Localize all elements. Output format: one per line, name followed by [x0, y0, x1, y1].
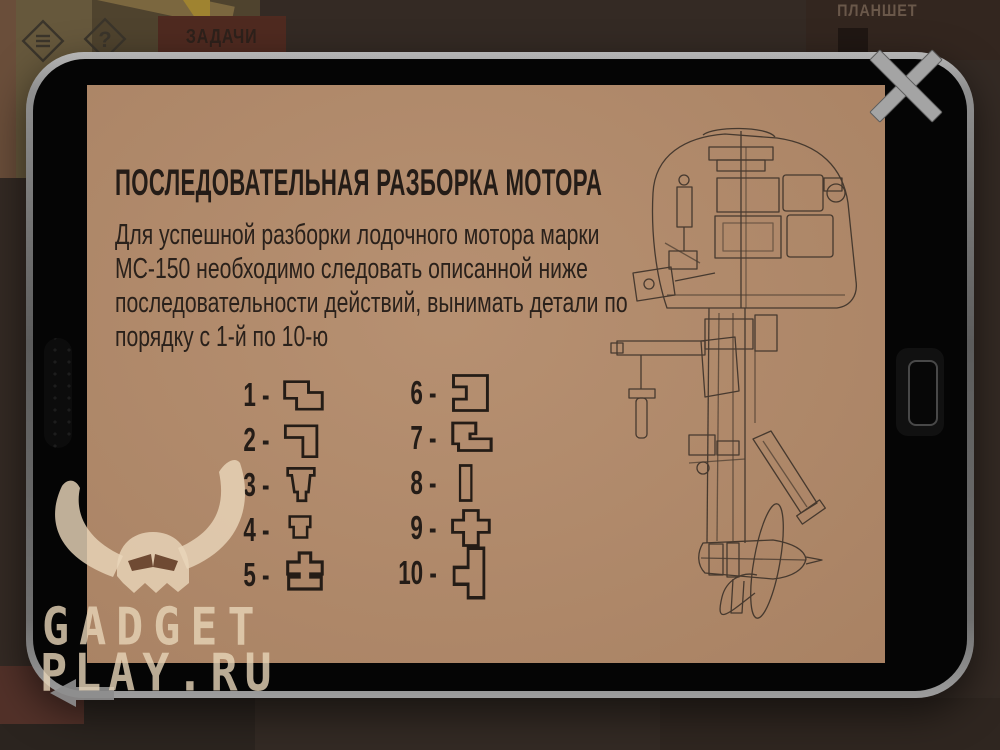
sequence-piece-icon — [281, 420, 323, 460]
sequence-item-2: 2 - — [212, 418, 327, 462]
sequence-piece-icon — [281, 464, 321, 506]
sequence-item-4: 4 - — [212, 508, 327, 552]
speaker-grille — [44, 338, 72, 448]
sequence-number: 5 - — [212, 556, 270, 594]
sequence-item-7: 7 - — [379, 416, 494, 460]
close-button[interactable] — [866, 46, 946, 126]
sequence-list-left: 1 - 2 - 3 - 4 - 5 - — [212, 373, 327, 597]
sequence-piece-icon — [281, 375, 325, 415]
sequence-number: 4 - — [212, 511, 270, 549]
back-arrow-icon[interactable] — [48, 676, 120, 712]
sequence-number: 3 - — [212, 466, 270, 504]
sequence-piece-icon — [448, 546, 490, 600]
sequence-item-6: 6 - — [379, 371, 494, 415]
sequence-item-9: 9 - — [379, 506, 494, 550]
room-floor-panel — [660, 698, 1000, 750]
sequence-item-1: 1 - — [212, 373, 327, 417]
sequence-number: 1 - — [212, 376, 270, 414]
sequence-number: 9 - — [379, 509, 437, 547]
sequence-number: 7 - — [379, 419, 437, 457]
sequence-item-3: 3 - — [212, 463, 327, 507]
sequence-number: 8 - — [379, 464, 437, 502]
sequence-item-8: 8 - — [379, 461, 494, 505]
room-wall-edge — [0, 0, 16, 178]
tablet-screen: ПОСЛЕДОВАТЕЛЬНАЯ РАЗБОРКА МОТОРА Для усп… — [87, 85, 885, 663]
sequence-piece-icon — [281, 551, 327, 599]
close-x-icon — [866, 46, 946, 126]
motor-technical-drawing — [605, 123, 905, 653]
tasks-button-label: ЗАДАЧИ — [186, 26, 257, 49]
sequence-piece-icon — [448, 507, 492, 549]
sequence-piece-icon — [281, 512, 319, 548]
sequence-item-5: 5 - — [212, 553, 327, 597]
sequence-number: 10 - — [379, 554, 437, 592]
help-glyph: ? — [98, 27, 111, 52]
sequence-piece-icon — [448, 418, 494, 458]
sequence-number: 6 - — [379, 374, 437, 412]
sequence-list-right: 6 - 7 - 8 - 9 - 10 - — [379, 371, 494, 595]
page-title: ПОСЛЕДОВАТЕЛЬНАЯ РАЗБОРКА МОТОРА — [115, 168, 602, 198]
sequence-number: 2 - — [212, 421, 270, 459]
camera-icon — [908, 360, 938, 426]
sequence-piece-icon — [448, 462, 482, 504]
tablet-caption: ПЛАНШЕТ — [818, 1, 936, 21]
sequence-item-10: 10 - — [379, 551, 494, 595]
instructions-paragraph: Для успешной разборки лодочного мотора м… — [115, 218, 611, 354]
sequence-piece-icon — [448, 372, 492, 414]
